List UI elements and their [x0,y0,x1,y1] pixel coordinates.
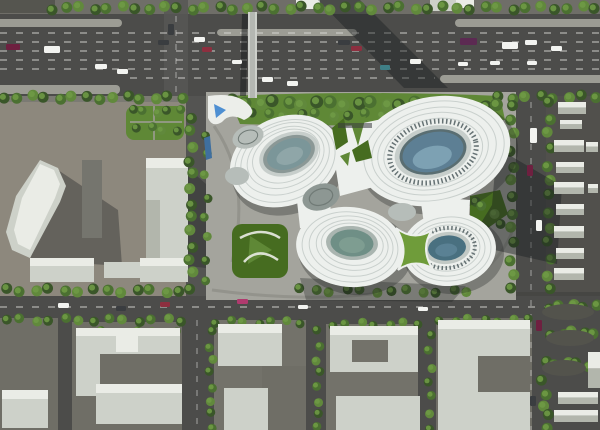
small-building-roof [556,248,584,253]
tree-crown [202,132,207,137]
scene-svg [0,0,600,430]
car [460,38,477,45]
tree-crown [315,410,320,415]
b2-north-slab-top [218,324,282,333]
tree-crown [0,94,6,100]
tree-crown [312,357,317,362]
tree-crown [453,4,459,10]
tree-crown [539,402,545,408]
tree-crown [208,327,213,332]
tree-crown [163,288,169,294]
tree-crown [63,3,69,9]
median-strip [455,19,600,27]
tree-crown [125,92,131,98]
tree-crown [565,93,571,99]
tree-crown [296,100,303,107]
tree-crown [428,392,433,397]
small-building-roof [556,204,584,209]
b4-south-slab [478,392,530,430]
car [116,306,126,311]
tree-crown [394,2,400,8]
median-strip [0,19,122,27]
car [202,47,212,52]
tree-crown [62,314,68,320]
tree-crown [355,3,361,9]
islet-3 [542,360,586,376]
dark-slab-building [82,160,102,238]
tree-crown [189,6,195,12]
tree-crown [426,410,431,415]
tree-crown [477,202,483,208]
tree-crown [425,378,430,383]
car [502,42,518,49]
tree-crown [338,100,345,107]
b2-south-slab [224,388,268,430]
car [160,302,170,307]
tree-crown [465,6,471,12]
lot-south-slab-2 [104,262,144,278]
car [490,61,500,65]
tree-crown [593,301,599,307]
tree-crown [543,272,549,278]
tree-crown [205,368,210,373]
tree-crown [189,143,195,149]
tree-crown [154,109,159,114]
tree-crown [207,409,212,414]
tree-crown [592,93,598,99]
tree-crown [136,318,142,324]
tree-crown [138,107,143,112]
tree-crown [295,284,301,290]
tree-crown [206,344,211,349]
car [6,44,20,50]
tree-crown [187,114,193,120]
tree-crown [187,212,193,218]
tree-crown [104,286,110,292]
car [380,65,390,70]
islet-2 [546,330,594,346]
tree-crown [536,2,542,8]
car [527,165,533,176]
tree-crown [3,284,9,290]
tree-crown [15,314,21,320]
tree-crown [187,201,193,207]
tree-crown [270,5,276,11]
b3-court [352,340,388,362]
tree-crown [544,98,550,104]
tree-crown [177,318,183,324]
tree-crown [257,99,264,106]
car [298,305,308,309]
car [525,40,537,45]
tree-crown [202,257,207,262]
tree-crown [204,195,209,200]
tree-crown [384,4,390,10]
tree-crown [543,128,549,134]
tree-crown [74,317,80,323]
small-building-roof [558,102,586,107]
tree-crown [312,97,319,104]
tree-crown [510,271,516,277]
tree-crown [550,5,556,11]
car [418,307,428,311]
tree-crown [538,91,544,97]
tree-crown [92,5,98,11]
dome-w [225,167,249,185]
tree-crown [399,318,404,323]
tree-crown [464,315,469,320]
tree-crown [428,365,433,370]
tree-crown [577,91,583,97]
b2-court [262,366,306,430]
tree-crown [494,92,500,98]
car [551,46,562,51]
tree-crown [315,4,321,10]
slab-building-2-step [146,200,160,266]
tree-crown [344,112,350,118]
tree-crown [90,318,96,324]
islet-1 [542,304,594,320]
car [58,303,69,308]
tree-crown [174,127,179,132]
tree-crown [580,2,586,8]
tree-crown [102,4,108,10]
tree-crown [425,346,430,351]
tree-crown [201,213,206,218]
tree-crown [325,97,332,104]
tree-crown [313,383,318,388]
car [194,37,205,42]
tree-crown [355,99,362,106]
art-garden [232,224,288,278]
tree-crown [74,2,80,8]
skylight-strip [338,123,372,128]
car [158,40,169,45]
car [530,396,536,406]
car [530,128,537,143]
tree-crown [185,184,191,190]
tree-crown [287,5,293,11]
tree-crown [179,94,185,100]
tree-crown [43,284,49,290]
car [232,60,242,64]
tree-crown [33,287,39,293]
car [536,220,542,231]
tree-crown [297,2,303,8]
tree-crown [510,315,515,320]
car [351,46,362,51]
tree-crown [209,384,214,389]
tree-crown [67,92,73,98]
tree-crown [311,109,317,115]
tree-crown [177,106,182,111]
tree-crown [542,357,548,363]
tree-crown [73,288,79,294]
lot-south-slab-3-top [140,258,188,266]
lot-south-slab-1-top [30,258,94,266]
tree-crown [509,95,515,101]
tree-crown [423,5,429,11]
tree-crown [439,2,445,8]
tree-crown [145,285,151,291]
tree-crown [313,423,318,428]
tree-crown [412,5,418,11]
car [95,64,107,69]
tree-crown [163,107,168,112]
car [287,81,298,86]
tree-crown [44,317,50,323]
tree-crown [316,343,321,348]
tree-crown [83,92,89,98]
tree-crown [186,126,192,132]
median-strip [440,75,600,83]
car [410,59,421,64]
tree-crown [520,92,526,98]
tree-crown [202,277,207,282]
tree-crown [106,314,112,320]
tree-crown [267,317,272,322]
tree-crown [189,268,195,274]
tree-crown [162,92,168,98]
tree-crown [39,93,45,99]
tree-crown [56,95,62,101]
tree-crown [208,425,213,430]
tree-crown [189,169,195,175]
tree-crown [160,2,166,8]
tree-crown [3,316,9,322]
tree-crown [33,318,39,324]
car [237,299,248,304]
tree-crown [185,256,191,262]
tree-crown [542,391,548,397]
tree-crown [119,2,125,8]
tree-crown [134,286,140,292]
tree-crown [133,124,138,129]
tree-crown [543,162,549,168]
small-building-roof [558,392,598,397]
tree-crown [189,243,195,249]
tree-crown [118,315,124,321]
tree-crown [365,97,372,104]
small-building-roof [560,120,582,124]
tree-crown [492,100,499,107]
tree-crown [186,226,192,232]
tree-crown [158,127,163,132]
tree-crown [428,331,433,336]
tree-crown [543,424,549,430]
tree-crown [546,115,552,121]
tree-crown [537,376,543,382]
tree-crown [506,257,512,263]
tree-crown [508,101,514,107]
tree-crown [361,109,367,115]
tree-crown [152,95,158,101]
car [117,69,128,74]
tree-crown [521,3,527,9]
tree-crown [341,320,346,325]
tree-crown [367,6,373,12]
dome-saddle [388,203,416,221]
b4-court [478,356,530,392]
car [458,62,468,66]
small-building-roof [554,182,584,187]
tree-crown [199,3,205,9]
tree-crown [228,317,233,322]
small-building-roof [554,268,584,273]
tree-crown [313,326,318,331]
tree-crown [204,233,209,238]
tree-crown [359,319,364,324]
tree-crown [13,94,19,100]
tree-crown [267,96,274,103]
small-building-roof [554,226,584,231]
tree-crown [228,6,234,12]
car [262,77,273,82]
tree-crown [544,410,550,416]
tree-crown [15,287,21,293]
tree-crown [61,287,67,293]
tree-crown [146,5,152,11]
tree-crown [185,285,191,291]
tree-crown [525,315,530,320]
tree-crown [89,285,95,291]
b3-north-slab-top [330,326,418,335]
b1-tower [116,330,138,352]
tree-crown [492,3,498,9]
b4-west-wing [438,356,478,430]
tree-crown [547,144,553,150]
tree-crown [482,2,488,8]
tree-crown [135,95,141,101]
tree-crown [258,2,264,8]
car [168,24,174,35]
tree-crown [243,4,249,10]
tree-crown [29,91,35,97]
median-strip [0,85,120,94]
tree-crown [116,288,122,294]
tree-crown [510,6,516,12]
tree-crown [108,93,114,99]
tree-crown [369,322,374,327]
small-building-roof [588,184,598,188]
tree-crown [506,284,512,290]
aerial-rendering [0,0,600,430]
tree-crown [217,2,223,8]
small-building-roof [586,142,598,147]
car [536,320,542,331]
tree-crown [149,123,154,128]
tree-crown [563,5,569,11]
tree-crown [238,318,243,323]
tree-crown [326,6,332,12]
tree-crown [48,6,54,12]
tree-crown [383,100,390,107]
b3-south-slab [336,396,420,430]
tree-crown [315,399,320,404]
tree-crown [285,98,292,105]
small-building-roof [588,352,600,368]
tree-crown [209,356,214,361]
tree-crown [201,171,206,176]
small-building-roof [556,162,584,167]
car [338,40,350,45]
tree-crown [283,317,288,322]
tree-crown [330,112,336,118]
tree-crown [96,95,102,101]
tree-crown [265,109,271,115]
tree-crown [172,3,178,9]
tree-crown [131,5,137,11]
block-a-bldg-top [2,390,48,399]
tree-crown [341,3,347,9]
car [527,61,537,65]
tree-crown [211,320,216,325]
tree-crown [316,368,321,373]
tree-crown [207,398,212,403]
tree-crown [130,106,135,111]
tree-crown [387,321,392,326]
small-building-roof [554,410,598,415]
car [44,46,60,53]
tree-crown [296,320,301,325]
tree-crown [165,314,171,320]
tree-crown [506,116,512,122]
tree-crown [546,284,552,290]
tree-crown [414,321,419,326]
small-building-roof [554,140,584,145]
tree-crown [147,315,153,321]
b1-south-slab-top [96,384,182,393]
b4-north-slab-top [438,320,530,329]
tree-crown [175,287,181,293]
slab-building-2-top [146,158,188,168]
tree-crown [185,158,191,164]
tree-crown [590,4,596,10]
